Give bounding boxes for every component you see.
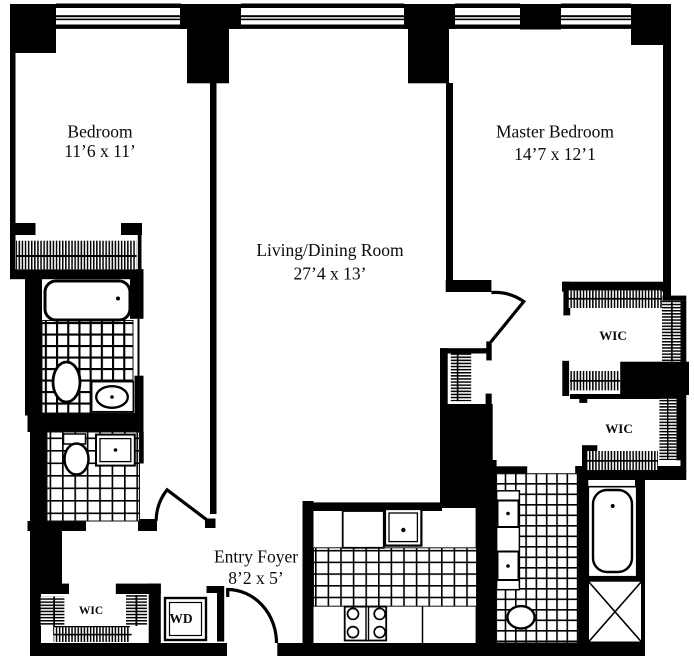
svg-text:WIC: WIC [605,421,632,436]
svg-text:14’7 x 12’1: 14’7 x 12’1 [514,144,596,164]
svg-text:8’2 x 5’: 8’2 x 5’ [228,568,283,588]
svg-text:WD: WD [169,611,193,626]
svg-text:Master Bedroom: Master Bedroom [496,122,614,142]
svg-text:11’6 x 11’: 11’6 x 11’ [64,141,136,161]
svg-text:WIC: WIC [599,328,626,343]
svg-text:WIC: WIC [79,605,103,617]
svg-text:Bedroom: Bedroom [67,122,133,142]
svg-text:Entry Foyer: Entry Foyer [214,547,298,567]
svg-text:27’4 x 13’: 27’4 x 13’ [294,264,367,284]
svg-text:Living/Dining Room: Living/Dining Room [256,240,404,260]
